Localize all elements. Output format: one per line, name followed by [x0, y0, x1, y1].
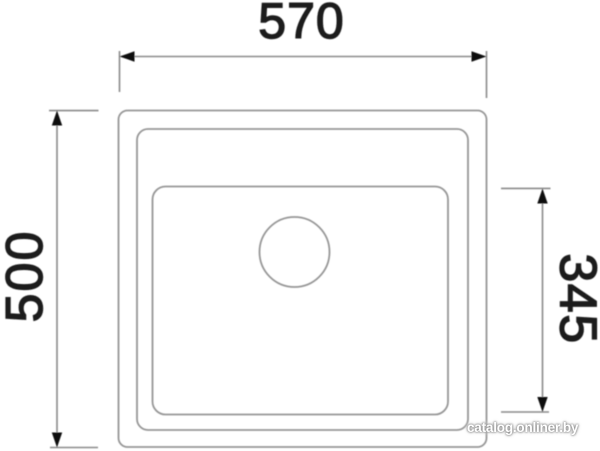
- svg-text:570: 570: [258, 0, 344, 49]
- svg-text:345: 345: [549, 253, 600, 344]
- svg-text:500: 500: [0, 230, 54, 323]
